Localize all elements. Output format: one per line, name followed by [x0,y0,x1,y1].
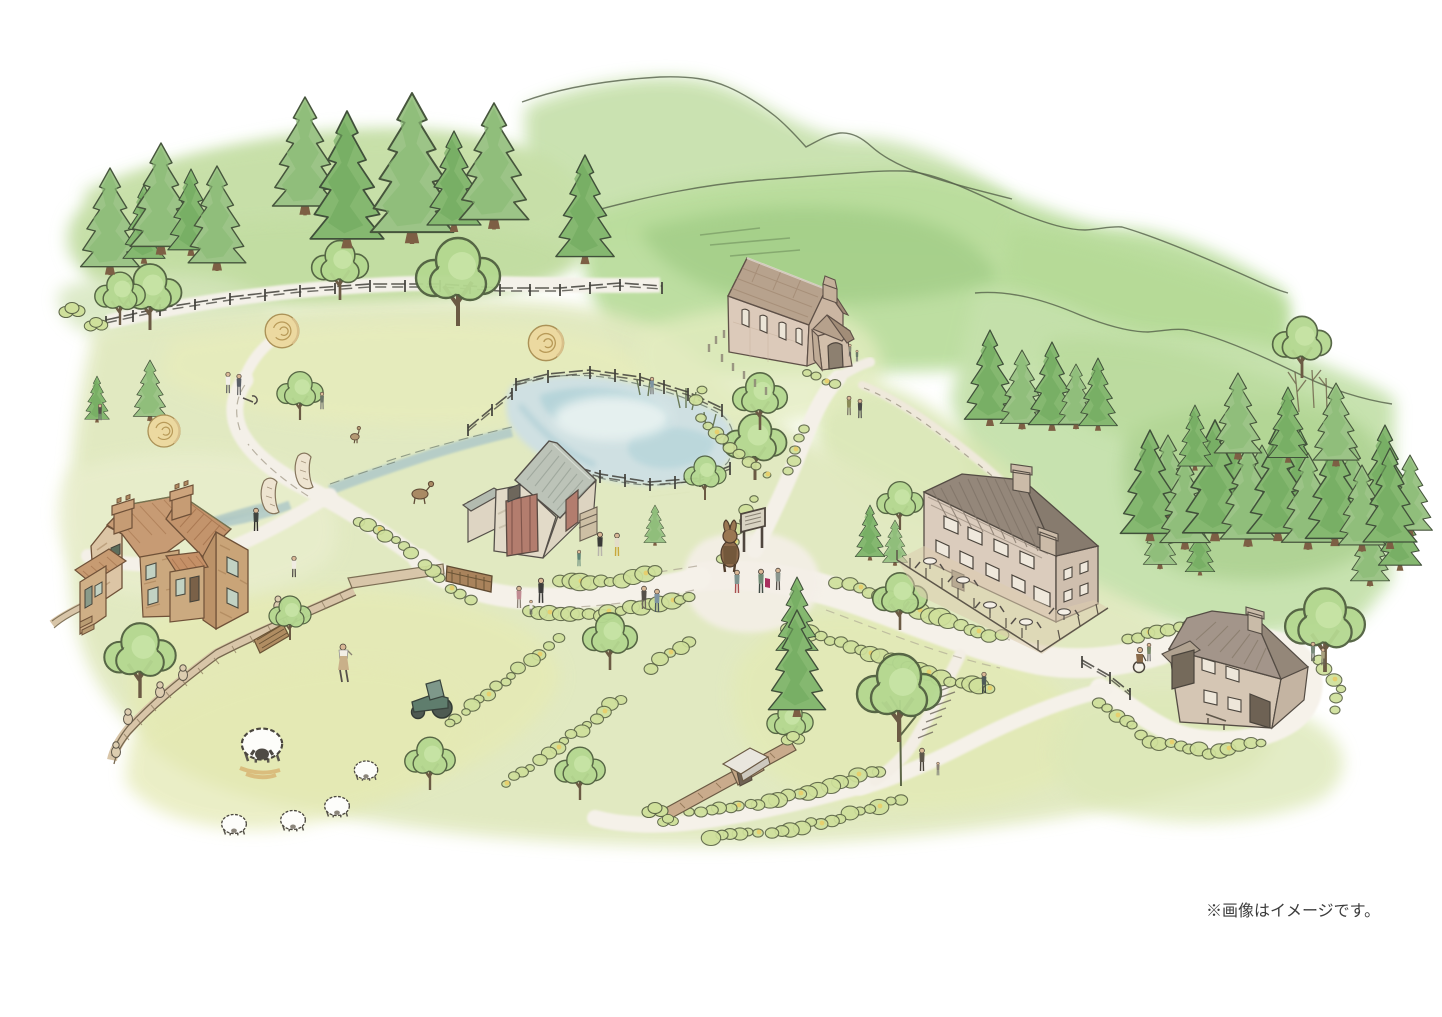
svg-text:※画像はイメージです。: ※画像はイメージです。 [1206,902,1380,920]
